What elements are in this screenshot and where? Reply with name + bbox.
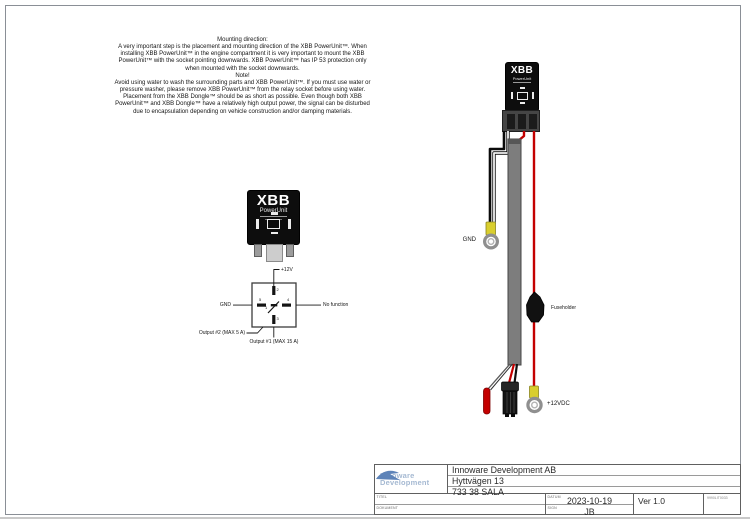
gnd-wire-white-outline [494, 131, 508, 224]
version-column: Ver 1.0 [633, 494, 703, 515]
connector-tip [511, 414, 515, 417]
pinout-pin-bars [257, 286, 291, 324]
gnd-crimp [486, 222, 496, 235]
company-logo: Innoware Development [375, 465, 448, 493]
sign-field: SIGN JB [546, 505, 633, 515]
ref-column: 9990LIT0033 [703, 494, 740, 515]
title-field: TITEL [375, 494, 545, 505]
red-sleeve-end [484, 388, 491, 414]
cable-loom-cap [508, 139, 521, 144]
ref-field: 9990LIT0033 [704, 494, 740, 515]
version-field: Ver 1.0 [634, 494, 703, 515]
power-crimp [530, 386, 539, 398]
gnd-ring-hole [488, 239, 494, 245]
cable-loom [508, 139, 521, 365]
wiring-lines [0, 0, 750, 521]
ref-value: 9990LIT0033 [707, 496, 728, 500]
pinout-relay-arm [268, 302, 279, 314]
gnd-wire-black [490, 131, 504, 224]
date-field: DATUM 2023-10-19 [546, 494, 633, 505]
date-sign-column: DATUM 2023-10-19 SIGN JB [545, 494, 633, 515]
company-info: Innoware Development AB Hyttvägen 13 733… [448, 465, 740, 493]
connector-tip [505, 414, 509, 417]
document-field: DOKUMENT [375, 505, 545, 515]
power-ring-hole [532, 402, 538, 408]
fuseholder-label: Fuseholder [551, 305, 576, 311]
drawing-page: Mounting direction: A very important ste… [0, 0, 750, 521]
title-block-bottom: TITEL DOKUMENT DATUM 2023-10-19 SIGN JB [375, 494, 740, 515]
black-stub-to-connector [515, 364, 518, 383]
title-fields-column: TITEL DOKUMENT [375, 494, 545, 515]
power-label: +12VDC [547, 401, 570, 408]
version-value: Ver 1.0 [638, 496, 665, 506]
title-block-top: Innoware Development Innoware Developmen… [375, 465, 740, 494]
document-field-label: DOKUMENT [377, 506, 399, 510]
connector-collar [502, 382, 519, 391]
sign-value: JB [546, 507, 633, 517]
title-block: Innoware Development Innoware Developmen… [374, 464, 741, 515]
fuseholder-body [527, 292, 545, 322]
gnd-label: GND [446, 237, 476, 244]
company-name: Innoware Development AB [448, 465, 740, 476]
gnd-wire-white [494, 131, 508, 224]
title-field-label: TITEL [377, 495, 388, 499]
logo-swoosh-icon [375, 468, 401, 482]
company-street: Hyttvägen 13 [448, 476, 740, 487]
